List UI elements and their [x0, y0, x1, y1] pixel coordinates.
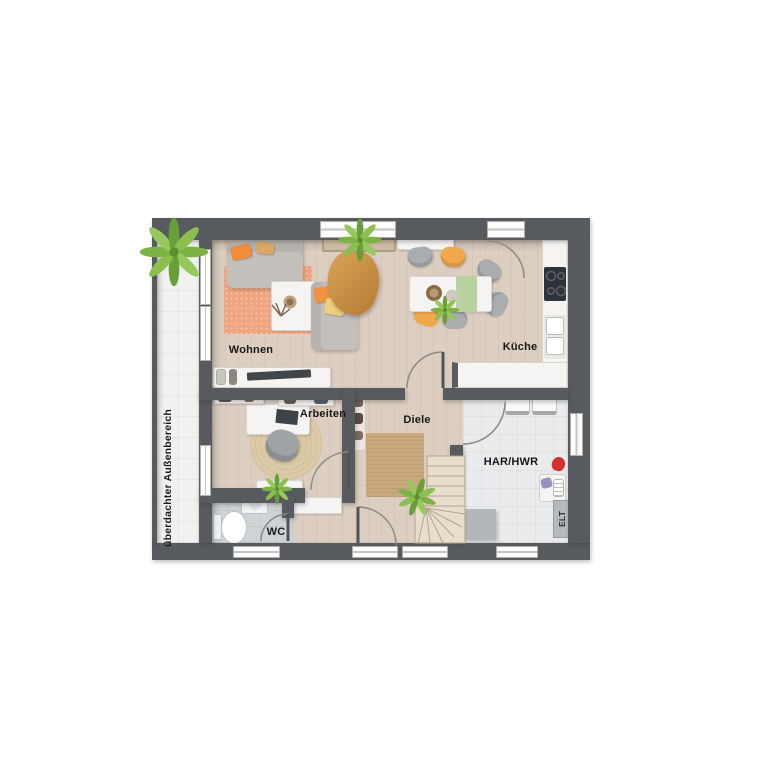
wall-living-south-left: [199, 388, 405, 400]
jute-rug: [366, 433, 424, 497]
window-wc-south: [233, 546, 280, 558]
window-har-east: [570, 413, 583, 456]
dining-table: [409, 276, 492, 312]
outdoor-area-label: überdachter Außenbereich: [162, 409, 174, 547]
floor-plan: ELT: [0, 0, 775, 775]
cooktop: [544, 267, 566, 301]
tv-board-deco-2: [229, 369, 237, 385]
window-har-south: [496, 546, 538, 558]
wall-kitchen-south: [443, 388, 568, 400]
storage-box: [464, 509, 496, 540]
room-label-har-hwr: HAR/HWR: [484, 456, 539, 468]
coffee-table: [271, 281, 316, 331]
wall-outer-right: [568, 240, 590, 543]
sofa-pillow-tan: [255, 241, 274, 255]
window-office-west: [200, 445, 211, 496]
window-terrace-upper: [200, 249, 211, 305]
kitchen-counter-bottom: [452, 362, 568, 388]
window-stairs-south: [402, 546, 448, 558]
wall-outer-left-thin: [152, 240, 157, 543]
room-label-arbeiten: Arbeiten: [300, 408, 346, 420]
tv-board-deco: [216, 369, 226, 385]
sink-basin: [546, 337, 564, 355]
wall-wc-east: [282, 497, 294, 518]
room-label-diele: Diele: [403, 414, 430, 426]
laptop: [275, 409, 298, 425]
table-runner-green: [456, 276, 477, 312]
toilet-bowl: [221, 511, 247, 544]
room-label-kueche: Küche: [503, 341, 538, 353]
wall-har-west: [450, 445, 463, 543]
door-kitchen-top-sill: [487, 221, 525, 238]
window-terrace-lower: [200, 306, 211, 361]
window-living-top: [320, 221, 396, 238]
room-label-wohnen: Wohnen: [229, 344, 273, 356]
sink-basin: [546, 317, 564, 335]
room-label-wc: WC: [267, 526, 286, 538]
front-door-sill: [352, 546, 398, 558]
utility-shelf-item: [553, 479, 564, 497]
elt-label: ELT: [557, 511, 567, 527]
wall-office-east: [342, 388, 355, 503]
